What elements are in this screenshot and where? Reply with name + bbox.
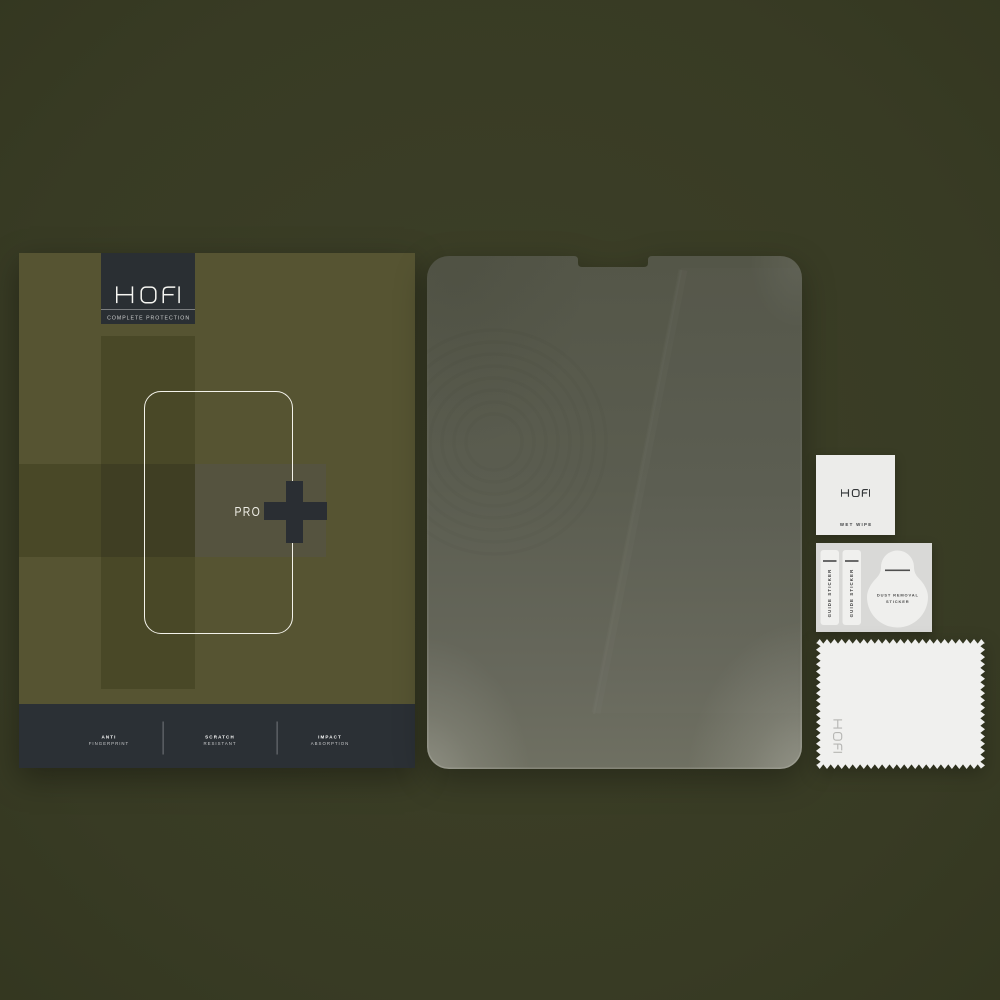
svg-text:STICKER: STICKER [886, 599, 910, 604]
svg-text:COMPLETE PROTECTION: COMPLETE PROTECTION [107, 315, 190, 321]
svg-text:DUST REMOVAL: DUST REMOVAL [877, 592, 919, 597]
svg-text:WET WIPE: WET WIPE [840, 522, 873, 527]
svg-text:GUIDE STICKER: GUIDE STICKER [827, 569, 832, 618]
svg-text:ANTI: ANTI [101, 734, 116, 739]
svg-text:SCRATCH: SCRATCH [205, 734, 235, 739]
svg-text:ABSORPTION: ABSORPTION [311, 741, 349, 746]
svg-text:GUIDE STICKER: GUIDE STICKER [849, 569, 854, 618]
svg-text:PRO: PRO [235, 504, 262, 519]
svg-text:RESISTANT: RESISTANT [203, 741, 236, 746]
svg-text:FINGERPRINT: FINGERPRINT [89, 741, 129, 746]
svg-text:IMPACT: IMPACT [318, 734, 342, 739]
